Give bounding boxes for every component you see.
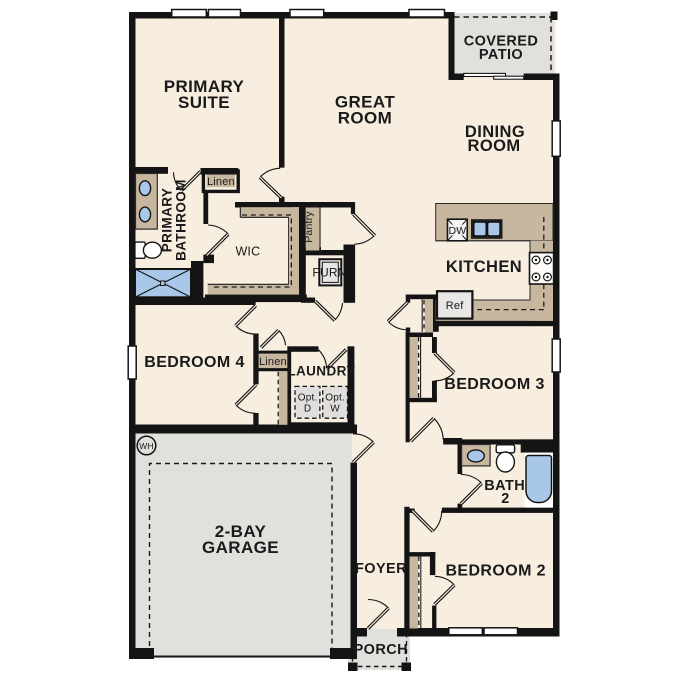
svg-text:2: 2 xyxy=(501,491,509,507)
svg-text:BEDROOM 2: BEDROOM 2 xyxy=(445,563,546,580)
svg-text:SUITE: SUITE xyxy=(178,93,230,112)
svg-text:Opt.: Opt. xyxy=(298,392,318,403)
svg-text:PATIO: PATIO xyxy=(479,47,523,63)
svg-text:FOYER: FOYER xyxy=(355,561,407,577)
svg-text:PORCH: PORCH xyxy=(354,642,408,658)
svg-text:ROOM: ROOM xyxy=(468,137,521,155)
svg-text:Opt.: Opt. xyxy=(325,392,345,403)
svg-text:GARAGE: GARAGE xyxy=(202,538,279,557)
svg-text:D: D xyxy=(304,403,311,414)
svg-text:DW: DW xyxy=(448,225,466,237)
svg-text:WIC: WIC xyxy=(235,245,260,259)
svg-text:BATHROOM: BATHROOM xyxy=(174,179,189,261)
svg-text:W: W xyxy=(330,403,340,414)
svg-text:Linen: Linen xyxy=(207,176,235,188)
svg-text:Ref: Ref xyxy=(446,300,464,312)
svg-text:WH: WH xyxy=(139,441,154,451)
svg-text:PRIMARY: PRIMARY xyxy=(160,188,175,253)
svg-text:Pantry: Pantry xyxy=(303,211,315,243)
svg-text:KITCHEN: KITCHEN xyxy=(446,258,522,276)
svg-text:LAUNDRY: LAUNDRY xyxy=(287,364,355,379)
svg-text:BEDROOM 3: BEDROOM 3 xyxy=(444,376,545,393)
svg-text:BEDROOM 4: BEDROOM 4 xyxy=(144,354,245,371)
svg-text:FURN: FURN xyxy=(312,265,346,279)
svg-text:Linen: Linen xyxy=(259,356,287,368)
svg-text:ROOM: ROOM xyxy=(338,109,392,128)
